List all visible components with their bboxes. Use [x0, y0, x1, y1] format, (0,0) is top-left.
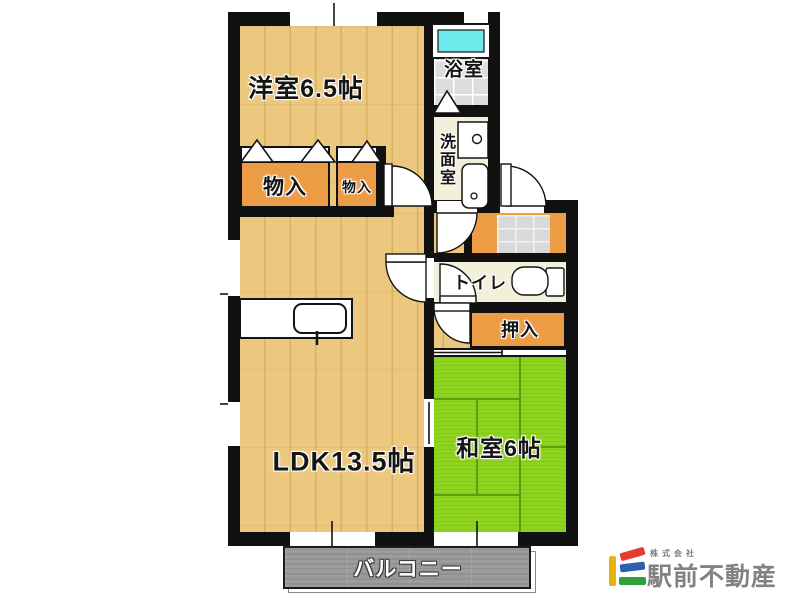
entrance-tile	[497, 215, 550, 253]
logo-red-stripe-icon	[619, 547, 645, 562]
ldk-door-gap	[424, 258, 434, 298]
room-label-japanese: 和室6帖	[456, 429, 542, 463]
room-label-washroom: 洗面室	[433, 133, 457, 187]
wall-bath-wash	[434, 105, 488, 117]
wall-hall-ldk-lower	[424, 298, 434, 312]
room-label-ldk: LDK13.5帖	[272, 440, 415, 479]
wall-toilet-bottom	[434, 302, 578, 311]
wall-right-lower	[566, 200, 578, 546]
wall-hall-ldk-upper	[424, 213, 434, 258]
wall-entrance-left	[464, 213, 472, 253]
room-label-storage-small: 物入	[342, 177, 372, 197]
room-label-balcony: バルコニー	[353, 553, 463, 583]
window-bath-top	[464, 12, 488, 26]
logo-yellow-bar-icon	[609, 556, 616, 586]
company-name: 駅前不動産	[647, 557, 777, 593]
washitsu-sliding-gap	[424, 399, 434, 447]
wall-bottom	[228, 532, 578, 546]
fusuma-track	[434, 348, 566, 357]
room-label-western: 洋室6.5帖	[248, 69, 364, 105]
company-logo: 株式会社 駅前不動産	[600, 542, 800, 598]
logo-blue-stripe-icon	[620, 562, 646, 573]
window-ldk-left-2	[228, 402, 240, 446]
logo-green-stripe-icon	[619, 577, 646, 585]
room-label-storage-large: 物入	[263, 171, 307, 201]
room-label-closet: 押入	[501, 316, 539, 342]
room-label-toilet: トイレ	[453, 269, 507, 294]
wall-toilet-top	[434, 253, 566, 262]
window-western-top	[290, 12, 377, 26]
wall-right-upper	[488, 12, 500, 213]
room-label-bathroom: 浴室	[444, 55, 484, 82]
wall-under-closets	[228, 206, 394, 217]
floor-plan: 洋室6.5帖 浴室 洗面室 物入 物入 トイレ 押入 LDK13.5帖 和室6帖…	[0, 0, 800, 600]
washroom-door-gap	[437, 201, 477, 213]
window-ldk-balcony	[290, 532, 375, 546]
window-ldk-left-1	[228, 240, 240, 296]
window-washitsu-balcony	[434, 532, 518, 546]
wall-closet-right	[378, 146, 386, 213]
entrance-door-gap	[500, 200, 544, 213]
